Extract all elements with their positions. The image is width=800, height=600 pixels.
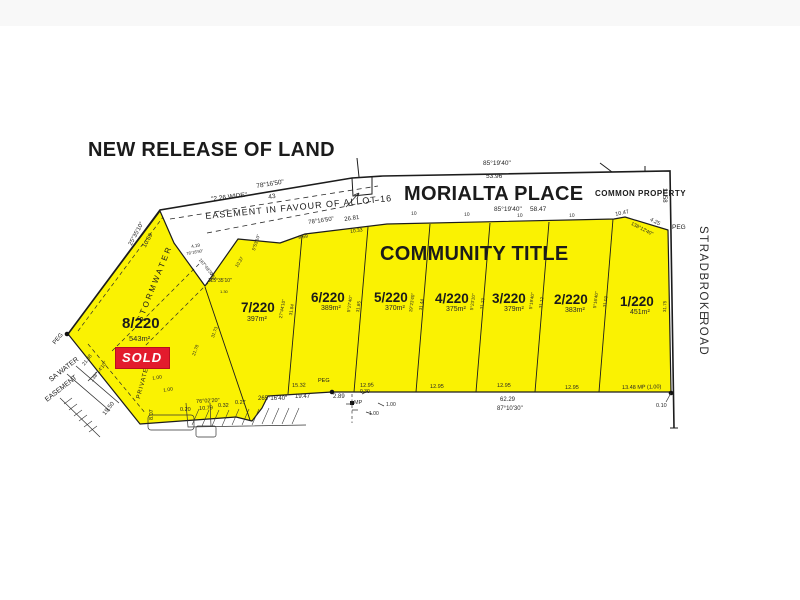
- dim-width-1295d: 12.95: [565, 386, 579, 392]
- lot-6-id: 6/220: [311, 290, 345, 305]
- dim-bottom-e2: 0.10: [656, 404, 667, 410]
- land-release-plan: NEW RELEASE OF LAND MORIALTA PLACE COMMO…: [0, 0, 800, 600]
- peg-label-bottom: PEG: [318, 379, 330, 385]
- dim-bottom-bearing-e: 87°10'30": [497, 406, 523, 412]
- road-name-road: ROAD: [697, 317, 709, 356]
- dim-nw-length: 43: [268, 194, 276, 202]
- dim-frontage-c: 10: [517, 214, 523, 219]
- dim-bottom-bearing-w: 265°16'40": [258, 396, 287, 402]
- dim-mp1: 0.30: [360, 390, 370, 395]
- dim-lot1-east-len: 31.75: [663, 301, 668, 312]
- common-property-label: COMMON PROPERTY: [595, 190, 686, 198]
- dim-sw-l5: 8.07: [150, 409, 156, 420]
- lot-4-id: 4/220: [435, 291, 469, 306]
- lot-4-area: 375m²: [446, 306, 466, 313]
- lot-3-id: 3/220: [492, 291, 526, 306]
- dim-mp3: 1.00: [369, 412, 379, 417]
- lot-1-area: 451m²: [630, 309, 650, 316]
- lot-7-id: 7/220: [241, 300, 275, 315]
- lot-5-area: 370m²: [385, 305, 405, 312]
- lot-6-area: 389m²: [321, 305, 341, 312]
- lot-8-id: 8/220: [122, 315, 160, 332]
- lot-3-area: 379m²: [504, 306, 524, 313]
- dim-frontage-d: 10: [569, 214, 575, 219]
- lot-2-id: 2/220: [554, 292, 588, 307]
- dim-top-length: 53.96: [486, 174, 502, 181]
- dim-bottom-e: 13.48 MP (1.00): [622, 385, 661, 391]
- dim-sw-l1: 10.79: [199, 406, 213, 412]
- street-name-label: MORIALTA PLACE: [404, 184, 583, 204]
- sold-badge: SOLD: [115, 347, 170, 369]
- lot-7-area: 397m²: [247, 316, 267, 323]
- community-title-label: COMMUNITY TITLE: [380, 244, 569, 264]
- lot-5-id: 5/220: [374, 290, 408, 305]
- dim-notch-b1: 115°35'10": [208, 279, 232, 284]
- dim-top-bearing: 85°19'40": [483, 161, 511, 168]
- lot-8-area: 543m²: [129, 334, 150, 343]
- page-title: NEW RELEASE OF LAND: [88, 140, 335, 160]
- dim-frontage-a: 10: [411, 212, 417, 217]
- dim-sw-l2: 0.32: [218, 404, 229, 410]
- dim-mp2: 1.00: [386, 403, 396, 408]
- lot-2-area: 383m²: [565, 307, 585, 314]
- peg-label-top-right: PEG: [672, 225, 686, 232]
- dim-bottom-total: 62.29: [500, 397, 515, 403]
- dim-sw-l4: 0.20: [180, 408, 191, 414]
- lot-1-id: 1/220: [620, 294, 654, 309]
- dim-width-1295b: 12.95: [430, 385, 444, 391]
- dim-frontage-b: 10: [464, 213, 470, 218]
- dim-notch-l4: 1.30: [220, 290, 228, 294]
- dim-road-length: 58.47: [530, 207, 546, 214]
- dim-bottom-w3: 15.32: [292, 384, 306, 390]
- dim-bottom-w1: 19.47: [295, 394, 310, 400]
- dim-sw-l3: 0.27: [235, 401, 246, 407]
- dim-mp: MP: [354, 401, 362, 407]
- dim-right-offset: 11.58: [661, 188, 667, 203]
- road-name-stradbroke: STRADBROKE: [697, 226, 709, 320]
- dim-width-1295c: 12.95: [497, 384, 511, 390]
- dim-bottom-w2: 2.89: [333, 394, 345, 400]
